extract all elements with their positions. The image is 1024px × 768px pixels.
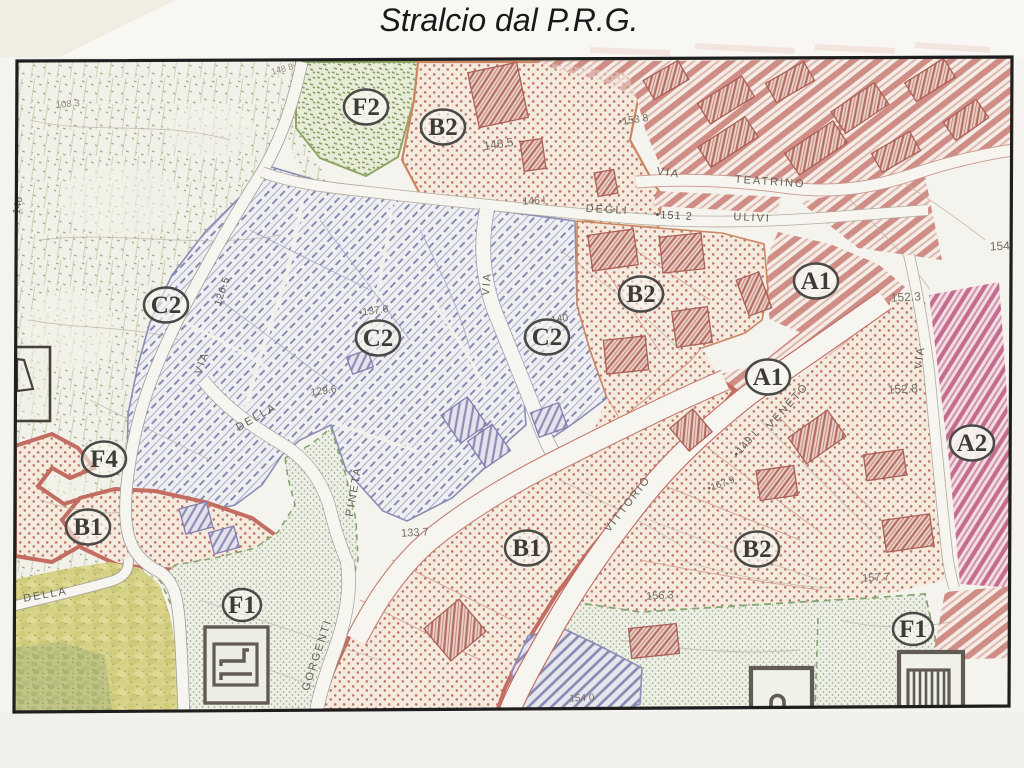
svg-text:Stralcio dal P.R.G.: Stralcio dal P.R.G. [379,2,638,38]
